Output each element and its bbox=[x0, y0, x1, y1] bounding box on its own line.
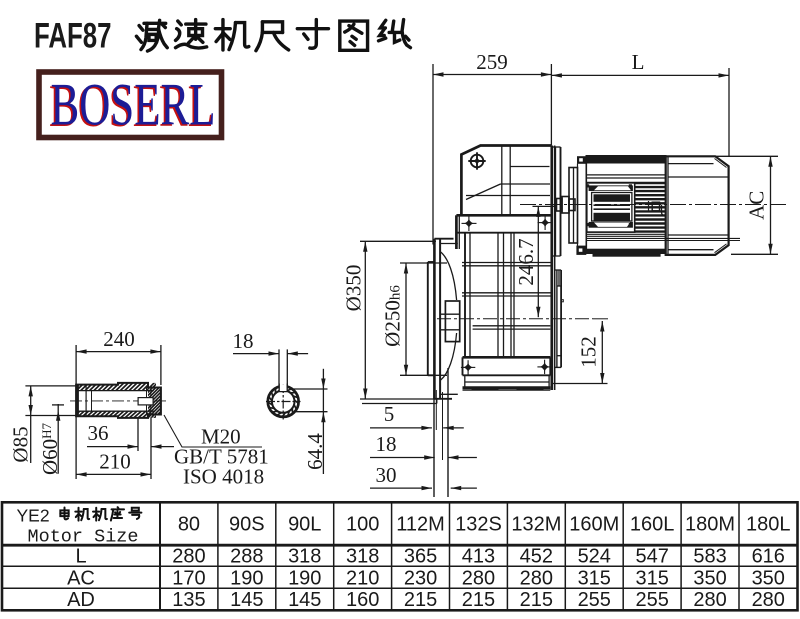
svg-text:240: 240 bbox=[103, 327, 135, 351]
svg-text:132M: 132M bbox=[511, 514, 561, 536]
svg-text:145: 145 bbox=[230, 589, 263, 611]
svg-text:80: 80 bbox=[178, 514, 200, 536]
svg-text:L: L bbox=[632, 50, 645, 74]
svg-text:YE2: YE2 bbox=[17, 506, 50, 526]
svg-text:280: 280 bbox=[520, 568, 553, 590]
svg-text:547: 547 bbox=[635, 546, 668, 568]
svg-text:180M: 180M bbox=[685, 514, 735, 536]
svg-text:AC: AC bbox=[67, 568, 95, 590]
svg-text:210: 210 bbox=[346, 568, 379, 590]
svg-text:Ø85: Ø85 bbox=[9, 426, 33, 462]
svg-text:230: 230 bbox=[404, 568, 437, 590]
svg-text:160M: 160M bbox=[569, 514, 619, 536]
svg-text:246.7: 246.7 bbox=[514, 238, 538, 285]
svg-text:132S: 132S bbox=[455, 514, 502, 536]
svg-text:583: 583 bbox=[693, 546, 726, 568]
svg-text:255: 255 bbox=[635, 589, 668, 611]
svg-text:145: 145 bbox=[288, 589, 321, 611]
svg-text:18: 18 bbox=[376, 432, 397, 456]
svg-text:ISO 4018: ISO 4018 bbox=[183, 465, 264, 489]
svg-text:5: 5 bbox=[384, 402, 395, 426]
svg-text:180L: 180L bbox=[746, 514, 791, 536]
svg-text:259: 259 bbox=[476, 50, 508, 74]
svg-text:350: 350 bbox=[693, 568, 726, 590]
svg-text:315: 315 bbox=[635, 568, 668, 590]
svg-text:100: 100 bbox=[346, 514, 379, 536]
svg-text:215: 215 bbox=[520, 589, 553, 611]
svg-text:365: 365 bbox=[404, 546, 437, 568]
svg-text:215: 215 bbox=[462, 589, 495, 611]
svg-text:315: 315 bbox=[578, 568, 611, 590]
svg-text:524: 524 bbox=[578, 546, 611, 568]
svg-text:FAF87: FAF87 bbox=[34, 16, 112, 56]
svg-text:AC: AC bbox=[745, 191, 769, 220]
svg-text:160: 160 bbox=[346, 589, 379, 611]
svg-text:280: 280 bbox=[693, 589, 726, 611]
svg-text:318: 318 bbox=[346, 546, 379, 568]
svg-text:18: 18 bbox=[233, 329, 254, 353]
svg-text:280: 280 bbox=[462, 568, 495, 590]
svg-text:64.4: 64.4 bbox=[303, 433, 327, 470]
svg-text:288: 288 bbox=[230, 546, 263, 568]
svg-text:255: 255 bbox=[578, 589, 611, 611]
svg-text:36: 36 bbox=[88, 421, 109, 445]
svg-text:190: 190 bbox=[230, 568, 263, 590]
svg-text:90S: 90S bbox=[229, 514, 265, 536]
svg-text:AD: AD bbox=[67, 589, 95, 611]
svg-text:413: 413 bbox=[462, 546, 495, 568]
svg-text:210: 210 bbox=[99, 450, 131, 474]
svg-text:Motor Size: Motor Size bbox=[27, 527, 138, 548]
svg-text:616: 616 bbox=[752, 546, 785, 568]
svg-text:190: 190 bbox=[288, 568, 321, 590]
svg-text:30: 30 bbox=[376, 463, 397, 487]
svg-text:L: L bbox=[75, 546, 86, 568]
svg-text:112M: 112M bbox=[396, 514, 445, 536]
svg-text:160L: 160L bbox=[630, 514, 675, 536]
svg-text:BOSERL: BOSERL bbox=[51, 72, 216, 138]
svg-text:135: 135 bbox=[172, 589, 205, 611]
svg-text:90L: 90L bbox=[288, 514, 321, 536]
svg-text:280: 280 bbox=[172, 546, 205, 568]
svg-text:215: 215 bbox=[404, 589, 437, 611]
svg-text:170: 170 bbox=[172, 568, 205, 590]
svg-text:280: 280 bbox=[752, 589, 785, 611]
svg-text:318: 318 bbox=[288, 546, 321, 568]
svg-text:452: 452 bbox=[520, 546, 553, 568]
svg-text:350: 350 bbox=[752, 568, 785, 590]
svg-text:152: 152 bbox=[577, 336, 601, 368]
svg-text:Ø350: Ø350 bbox=[342, 265, 366, 312]
